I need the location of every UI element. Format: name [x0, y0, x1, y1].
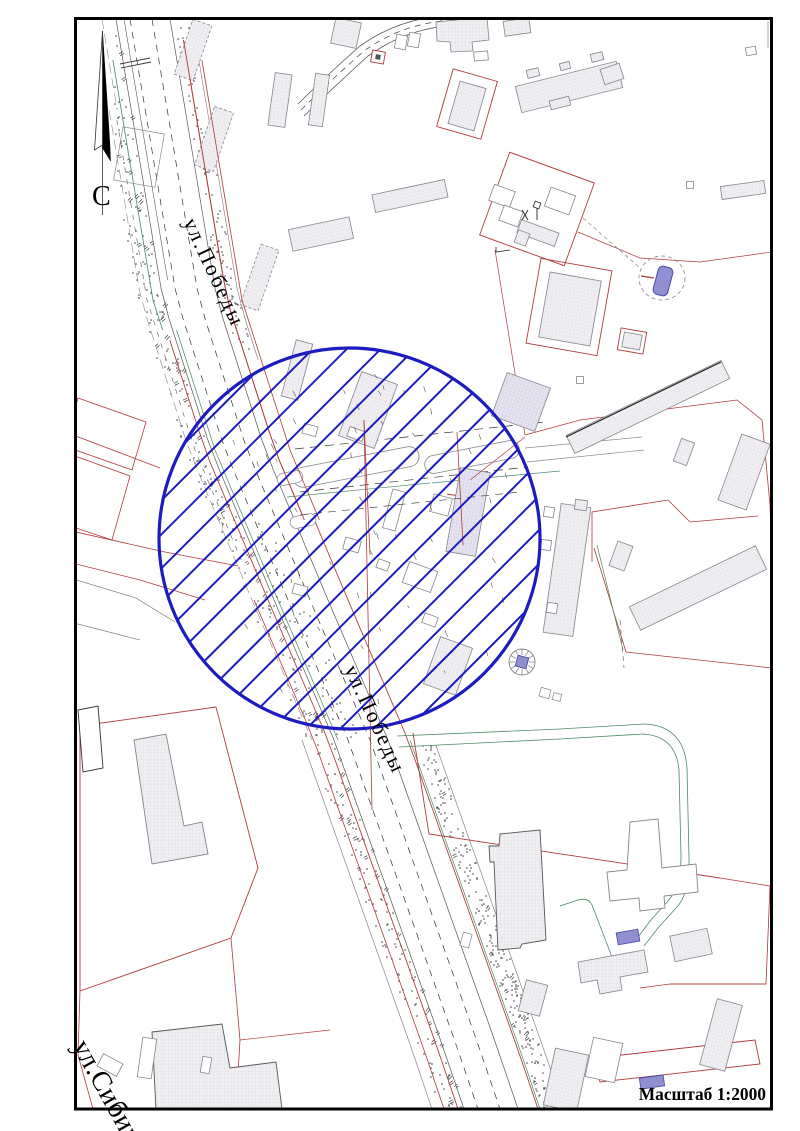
svg-text:Масштаб 1:2000: Масштаб 1:2000 — [639, 1084, 767, 1104]
svg-text:С: С — [92, 181, 111, 212]
